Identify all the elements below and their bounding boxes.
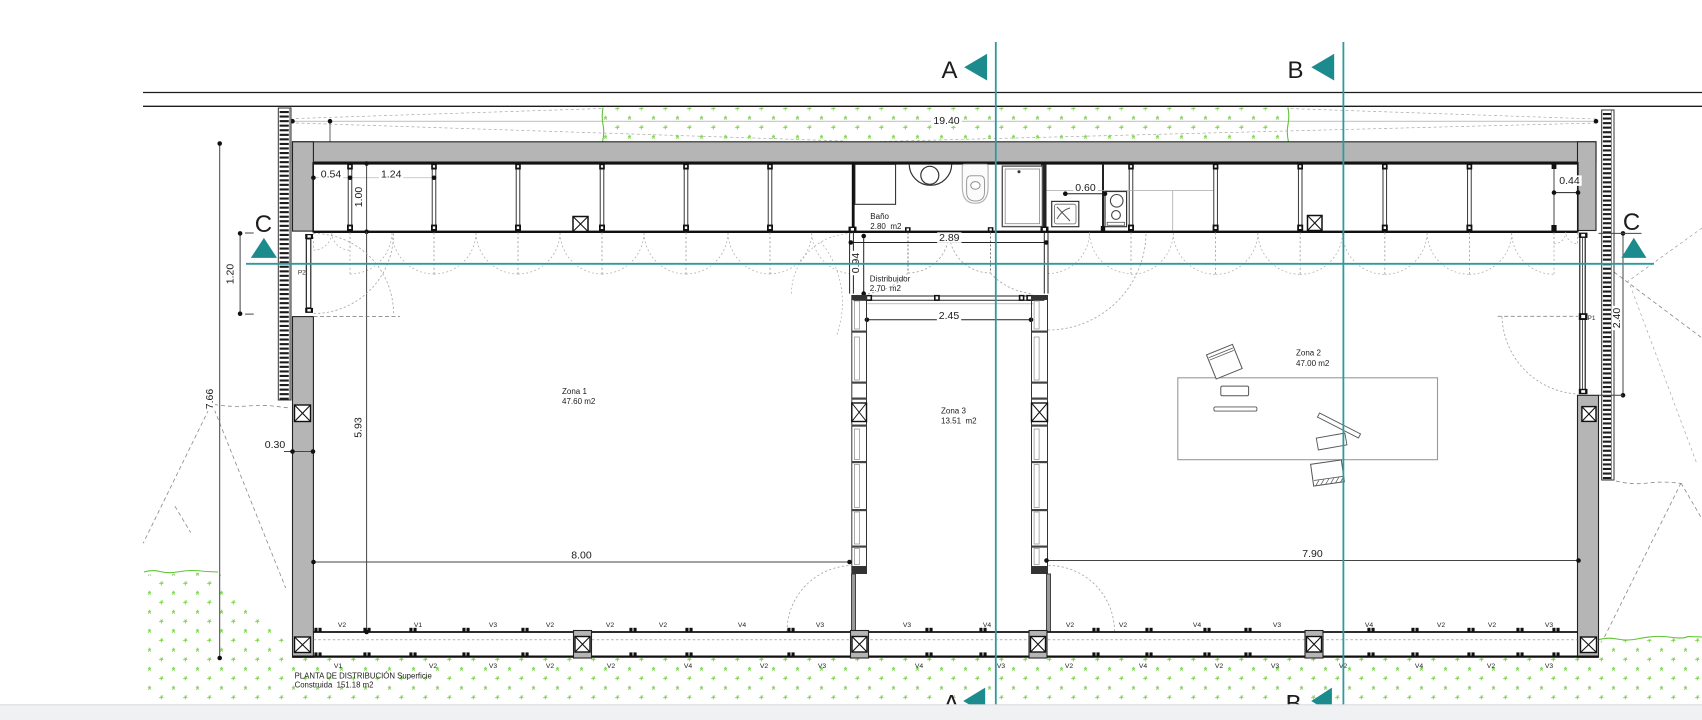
svg-text:Baño: Baño xyxy=(870,212,889,221)
svg-text:1.24: 1.24 xyxy=(381,168,402,180)
svg-text:V2: V2 xyxy=(659,622,668,629)
svg-text:V4: V4 xyxy=(1415,663,1424,670)
svg-text:2.45: 2.45 xyxy=(939,310,960,322)
svg-text:C: C xyxy=(1623,209,1640,236)
svg-text:V3: V3 xyxy=(816,622,825,629)
svg-text:Zona 2: Zona 2 xyxy=(1296,349,1321,358)
svg-text:V2: V2 xyxy=(606,622,615,629)
svg-text:V4: V4 xyxy=(738,622,747,629)
svg-text:7.90: 7.90 xyxy=(1302,548,1323,560)
svg-text:V2: V2 xyxy=(338,622,347,629)
svg-text:Distribuidor: Distribuidor xyxy=(870,275,911,284)
svg-text:P1: P1 xyxy=(1588,315,1596,322)
svg-text:V1: V1 xyxy=(414,622,423,629)
svg-text:0.30: 0.30 xyxy=(265,439,286,451)
svg-text:Zona 1: Zona 1 xyxy=(562,387,587,396)
svg-text:V3: V3 xyxy=(489,663,498,670)
svg-text:47.00 m2: 47.00 m2 xyxy=(1296,359,1330,368)
svg-text:2.40: 2.40 xyxy=(1611,308,1623,329)
svg-text:47.60 m2: 47.60 m2 xyxy=(562,397,596,406)
svg-text:V3: V3 xyxy=(1271,663,1280,670)
svg-text:A: A xyxy=(941,57,957,84)
svg-text:Construida 151.18 m2: Construida 151.18 m2 xyxy=(295,681,374,690)
svg-text:V2: V2 xyxy=(429,663,438,670)
svg-text:V2: V2 xyxy=(1065,663,1074,670)
svg-text:7.66: 7.66 xyxy=(204,389,216,410)
svg-text:P2: P2 xyxy=(298,270,306,277)
svg-text:0.60: 0.60 xyxy=(1075,182,1096,194)
svg-text:V2: V2 xyxy=(760,663,769,670)
svg-text:V1: V1 xyxy=(334,663,343,670)
svg-text:PLANTA DE DISTRIBUCIÓN Superfi: PLANTA DE DISTRIBUCIÓN Superficie xyxy=(295,671,432,680)
svg-text:V4: V4 xyxy=(1139,663,1148,670)
svg-text:V3: V3 xyxy=(1273,622,1282,629)
svg-text:1.20: 1.20 xyxy=(224,264,236,285)
svg-text:0.54: 0.54 xyxy=(321,168,342,180)
svg-text:V2: V2 xyxy=(607,663,616,670)
svg-text:B: B xyxy=(1287,57,1303,84)
svg-text:1.00: 1.00 xyxy=(353,187,365,208)
svg-text:19.40: 19.40 xyxy=(933,115,959,127)
svg-text:V2: V2 xyxy=(1437,622,1446,629)
svg-text:V4: V4 xyxy=(915,663,924,670)
svg-text:V4: V4 xyxy=(1193,622,1202,629)
svg-text:V3: V3 xyxy=(997,663,1006,670)
svg-text:V3: V3 xyxy=(1545,622,1554,629)
svg-text:Zona 3: Zona 3 xyxy=(941,407,966,416)
svg-text:V2: V2 xyxy=(546,622,555,629)
svg-text:V4: V4 xyxy=(983,622,992,629)
svg-text:5.93: 5.93 xyxy=(353,417,365,438)
svg-text:V2: V2 xyxy=(546,663,555,670)
svg-text:V2: V2 xyxy=(1119,622,1128,629)
svg-text:V3: V3 xyxy=(489,622,498,629)
svg-text:V4: V4 xyxy=(1365,622,1374,629)
svg-text:V3: V3 xyxy=(818,663,827,670)
svg-text:V2: V2 xyxy=(1215,663,1224,670)
svg-text:V3: V3 xyxy=(903,622,912,629)
svg-text:2.80 m2: 2.80 m2 xyxy=(870,222,902,231)
svg-text:V2: V2 xyxy=(1487,663,1496,670)
svg-text:V3: V3 xyxy=(1545,663,1554,670)
svg-text:2.70 m2: 2.70 m2 xyxy=(870,284,902,293)
svg-text:8.00: 8.00 xyxy=(571,550,592,562)
svg-text:V2: V2 xyxy=(1066,622,1075,629)
svg-text:C: C xyxy=(255,211,272,238)
svg-text:2.89: 2.89 xyxy=(939,232,960,244)
svg-text:V4: V4 xyxy=(684,663,693,670)
svg-text:0.44: 0.44 xyxy=(1559,175,1580,187)
svg-text:V2: V2 xyxy=(1488,622,1497,629)
svg-text:13.51 m2: 13.51 m2 xyxy=(941,417,977,426)
